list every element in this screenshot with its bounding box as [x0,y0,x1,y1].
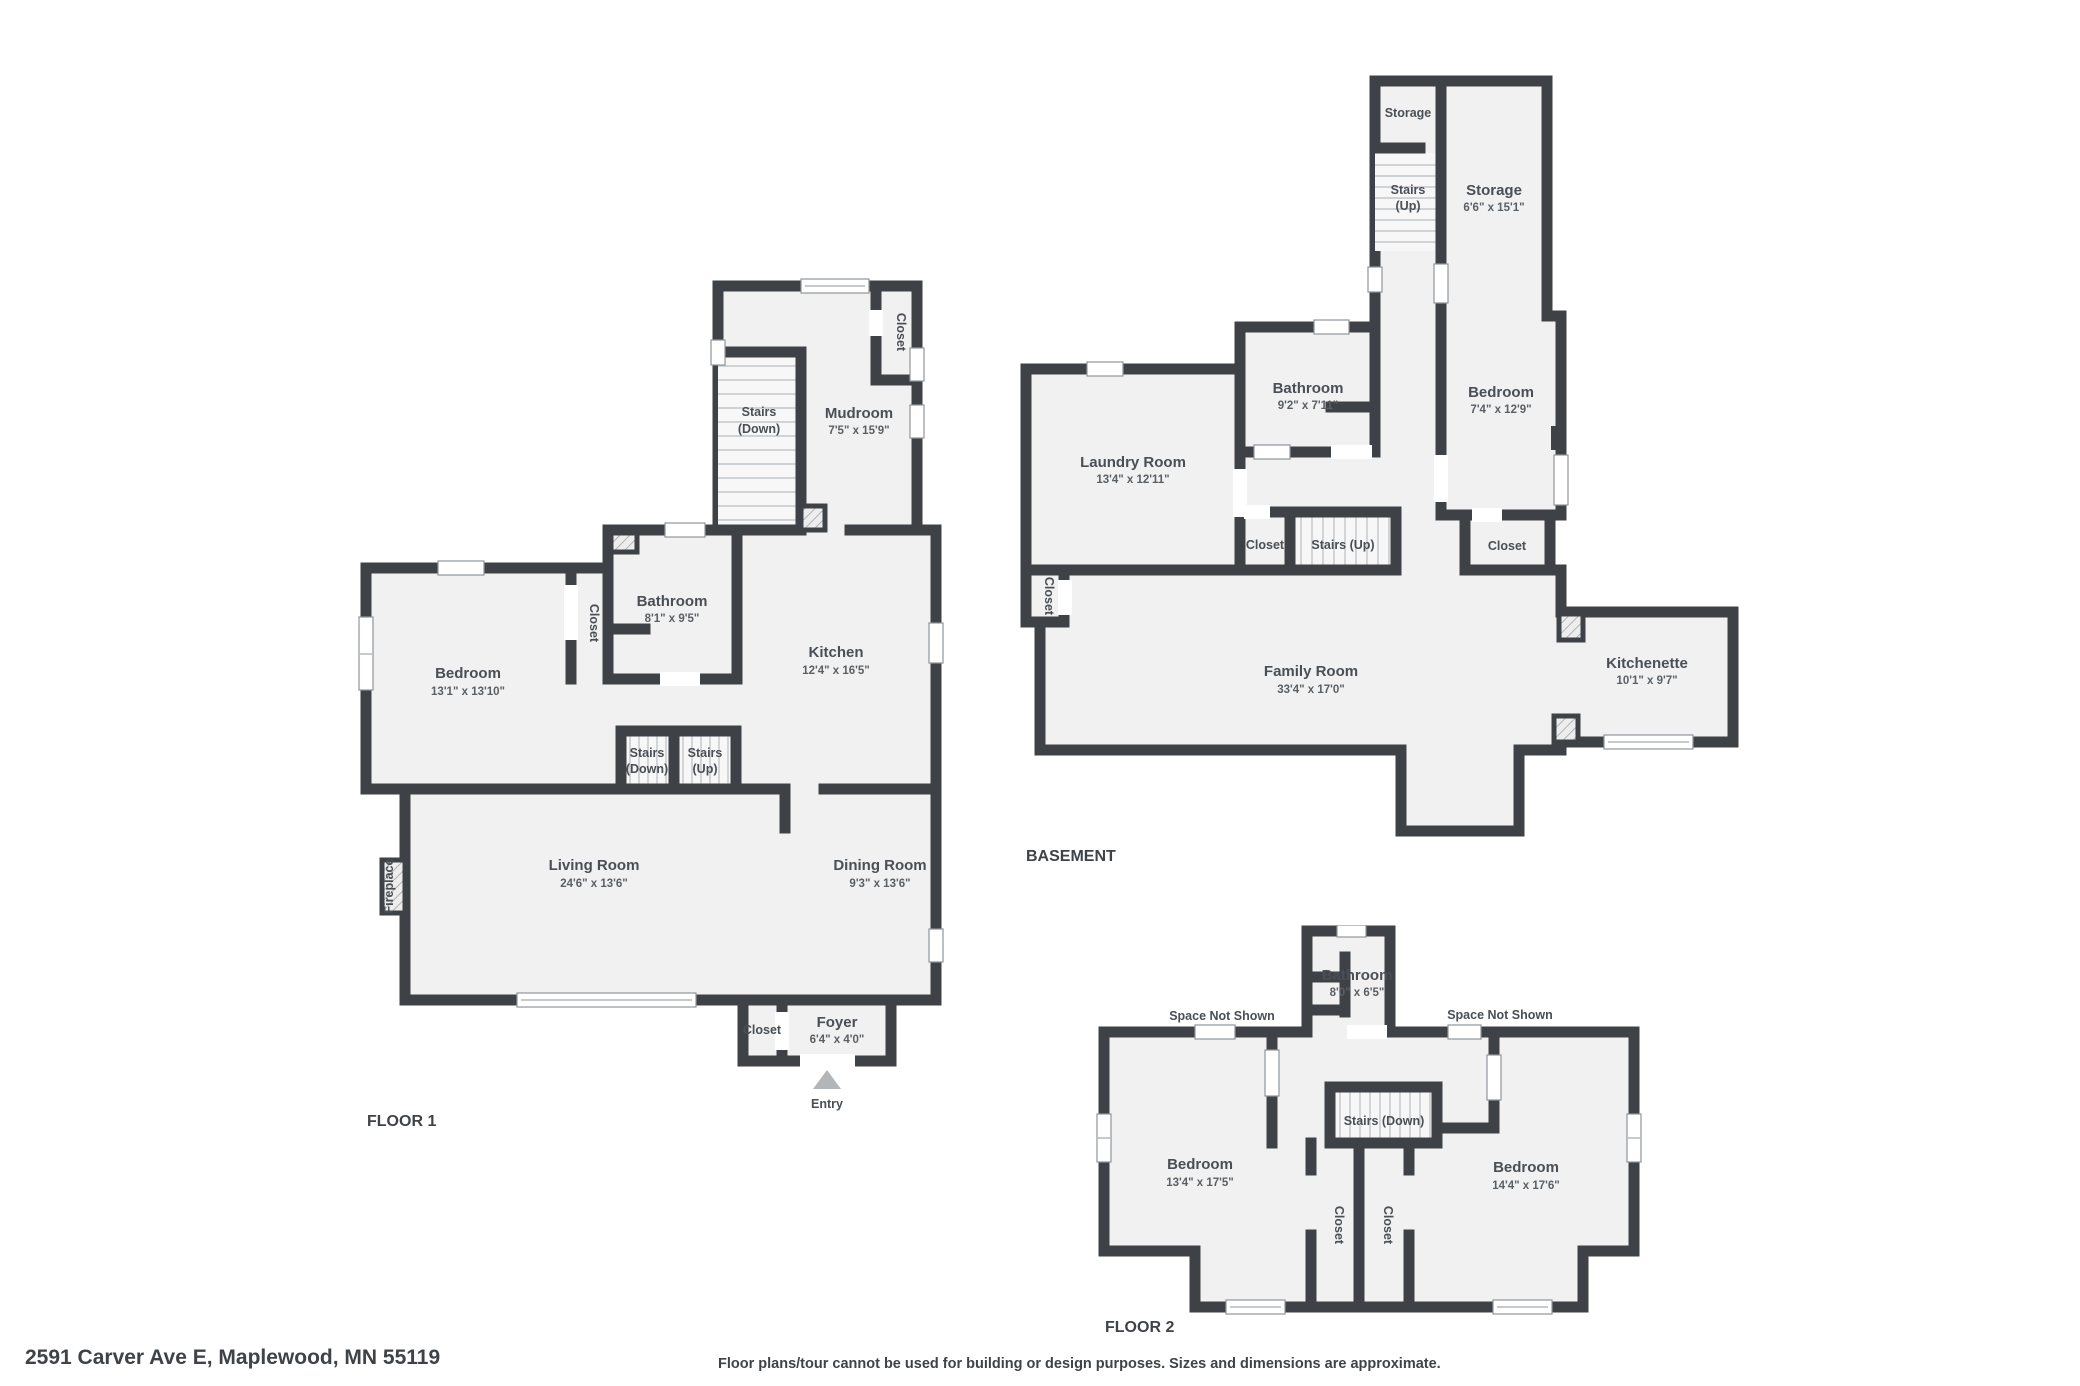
basement-closet-bedroom-label: Closet [1488,539,1527,553]
basement-kitchenette-dims: 10'1" x 9'7" [1616,675,1677,687]
floor1-mudroom-dims: 7'5" x 15'9" [828,425,889,437]
disclaimer-text: Floor plans/tour cannot be used for buil… [718,1356,1441,1372]
floor1-chimney-stairs [801,506,825,530]
basement-bathroom-label: Bathroom [1273,380,1344,397]
floor1-closet-mid-label: Closet [587,604,601,643]
basement-bedroom-label: Bedroom [1468,384,1534,401]
floor1-stairs-down-label-2: (Down) [626,762,668,776]
basement-bedroom-door-jamb [1551,426,1561,450]
basement-family-label: Family Room [1264,663,1358,680]
floor1-top-stairs [718,352,801,530]
property-address: 2591 Carver Ave E, Maplewood, MN 55119 [25,1346,440,1370]
basement-laundry-dims: 13'4" x 12'11" [1096,474,1169,486]
entry-arrow-icon [813,1070,841,1089]
floor1-plan: Stairs (Down) Mudroom 7'5" x 15'9" Close… [350,270,950,1140]
floor1-kitchen-label: Kitchen [808,644,863,661]
basement-stairs-mid-label: Stairs (Up) [1311,538,1374,552]
floor1-stairs-down-label-1: Stairs [630,746,665,760]
floor1-foyer-dims: 6'4" x 4'0" [810,1034,865,1046]
floor2-bedroom-right-label: Bedroom [1493,1159,1559,1176]
basement-closet-left-label: Closet [1042,577,1056,616]
floorplan-page: Stairs (Down) Mudroom 7'5" x 15'9" Close… [0,0,2080,1386]
floor1-entry-label: Entry [811,1097,843,1111]
basement-storage-big-dims: 6'6" x 15'1" [1463,202,1524,214]
basement-stairs-top-label-1: Stairs [1391,183,1426,197]
floor2-space-right-label: Space Not Shown [1447,1008,1553,1022]
floor1-kitchen-dims: 12'4" x 16'5" [802,665,870,677]
basement-storage-small-label: Storage [1385,106,1432,120]
floor1-dining-dims: 9'3" x 13'6" [849,878,910,890]
floor2-plan: Bathroom 8'0" x 6'5" Space Not Shown Spa… [1095,925,1645,1350]
floor1-stairs-up-label-2: (Up) [693,762,718,776]
floor2-stairs-label: Stairs (Down) [1344,1114,1425,1128]
basement-storage-big-label: Storage [1466,182,1522,199]
floor1-mudroom-label: Mudroom [825,405,893,422]
floor2-space-left-label: Space Not Shown [1169,1009,1275,1023]
basement-family-dims: 33'4" x 17'0" [1277,684,1345,696]
basement-title: BASEMENT [1026,848,1116,865]
floor1-bathroom-dims: 8'1" x 9'5" [645,613,700,625]
floor2-title: FLOOR 2 [1105,1319,1174,1336]
basement-bathroom-dims: 9'2" x 7'11" [1278,400,1339,412]
floor2-bedroom-left-label: Bedroom [1167,1156,1233,1173]
basement-bedroom-dims: 7'4" x 12'9" [1470,404,1531,416]
floor1-stairs-top-label-1: Stairs [742,405,777,419]
basement-chimney-bottom [1554,716,1578,742]
floor1-foyer-label: Foyer [817,1014,858,1031]
floor2-bathroom-dims: 8'0" x 6'5" [1330,987,1385,999]
floor1-living-dims: 24'6" x 13'6" [560,878,628,890]
floor1-closet-top-label: Closet [894,313,908,352]
floor1-stairs-up-label-1: Stairs [688,746,723,760]
basement-closet-hall-label: Closet [1246,538,1285,552]
floor1-dining-label: Dining Room [833,857,926,874]
basement-laundry-label: Laundry Room [1080,454,1186,471]
floor1-bedroom-dims: 13'1" x 13'10" [431,686,505,698]
basement-plan: Storage Stairs (Up) Storage 6'6" x 15'1"… [1020,75,1740,875]
basement-chimney-top [1559,614,1583,640]
floor2-closet-a-label: Closet [1332,1206,1346,1245]
floor1-stairs-top-label-2: (Down) [738,422,780,436]
floor1-bathroom-label: Bathroom [637,593,708,610]
basement-stairs-top-label-2: (Up) [1396,199,1421,213]
floor1-closet-foyer-label: Closet [743,1023,782,1037]
floor1-living-label: Living Room [549,857,640,874]
floor1-title: FLOOR 1 [367,1113,436,1130]
floor2-bedroom-right-dims: 14'4" x 17'6" [1492,1180,1560,1192]
floor1-chimney-bathroom [611,533,637,552]
floor1-bedroom-label: Bedroom [435,665,501,682]
floor2-closet-b-label: Closet [1381,1206,1395,1245]
floor1-fireplace-label: Fireplace [382,859,396,914]
floor2-bedroom-left-dims: 13'4" x 17'5" [1166,1177,1234,1189]
basement-kitchenette-label: Kitchenette [1606,655,1688,672]
floor2-bathroom-label: Bathroom [1322,967,1393,984]
